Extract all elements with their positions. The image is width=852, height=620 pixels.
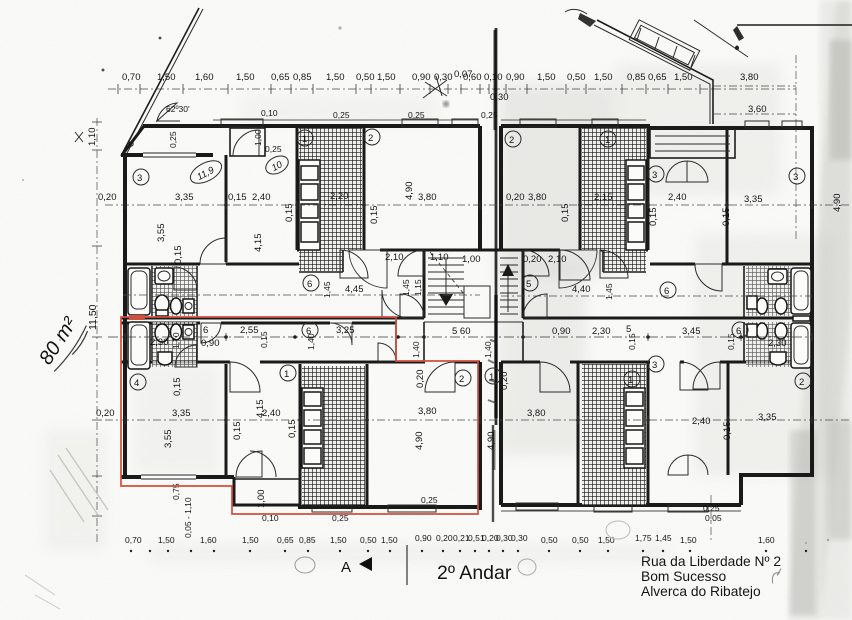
svg-text:0,25: 0,25 (265, 144, 282, 154)
svg-text:0,15: 0,15 (722, 422, 733, 441)
svg-text:0,20: 0,20 (436, 533, 453, 543)
svg-text:0,25: 0,25 (421, 495, 438, 505)
svg-text:0,20: 0,20 (523, 254, 542, 265)
svg-text:4,90: 4,90 (414, 432, 425, 451)
svg-text:3,35: 3,35 (175, 192, 194, 203)
svg-text:1,10: 1,10 (87, 128, 98, 147)
svg-text:1,45: 1,45 (401, 279, 411, 296)
svg-text:2,20: 2,20 (330, 191, 349, 202)
svg-text:1,50: 1,50 (377, 72, 396, 83)
svg-text:1,60: 1,60 (200, 535, 217, 545)
svg-text:2,10: 2,10 (548, 254, 567, 265)
svg-text:1,45: 1,45 (604, 283, 614, 300)
svg-text:0,90: 0,90 (506, 72, 525, 83)
svg-text:1: 1 (605, 135, 610, 146)
svg-text:0,50: 0,50 (541, 535, 558, 545)
svg-text:0,20: 0,20 (98, 192, 117, 203)
svg-text:0,60: 0,60 (463, 72, 482, 83)
svg-text:0,50: 0,50 (360, 535, 377, 545)
svg-text:1,50: 1,50 (594, 72, 613, 83)
svg-text:0,85: 0,85 (627, 72, 646, 83)
svg-text:2,30: 2,30 (592, 326, 611, 337)
svg-text:0,15: 0,15 (627, 333, 637, 350)
svg-text:4: 4 (134, 378, 139, 389)
svg-text:3,35: 3,35 (758, 412, 777, 423)
svg-text:3: 3 (793, 172, 798, 183)
svg-text:3,80: 3,80 (740, 72, 759, 83)
svg-text:0,85: 0,85 (299, 535, 316, 545)
svg-text:0,90: 0,90 (552, 326, 571, 337)
svg-text:1,50: 1,50 (326, 72, 345, 83)
svg-text:0,15: 0,15 (721, 208, 732, 227)
svg-text:1,00: 1,00 (462, 254, 481, 265)
svg-text:0,25: 0,25 (333, 110, 350, 120)
svg-text:Bom Sucesso: Bom Sucesso (641, 569, 726, 584)
svg-text:3,25: 3,25 (336, 325, 355, 336)
svg-text:1,10: 1,10 (430, 252, 449, 263)
svg-text:1,00: 1,00 (253, 129, 263, 146)
svg-text:3,80: 3,80 (418, 406, 437, 417)
svg-text:0,10: 0,10 (261, 108, 278, 118)
svg-text:1: 1 (628, 375, 633, 386)
svg-text:5: 5 (526, 279, 531, 290)
svg-text:2,40: 2,40 (668, 192, 687, 203)
svg-text:0,25: 0,25 (481, 110, 498, 120)
svg-text:3: 3 (652, 360, 657, 371)
svg-text:0,25: 0,25 (408, 110, 425, 120)
svg-text:0,15: 0,15 (726, 333, 736, 350)
svg-text:1,50: 1,50 (381, 535, 398, 545)
svg-text:4,90: 4,90 (832, 194, 843, 213)
svg-text:11,50: 11,50 (87, 304, 99, 330)
svg-text:3,35: 3,35 (744, 194, 763, 205)
svg-text:4,15: 4,15 (253, 234, 264, 253)
svg-text:1,50: 1,50 (330, 535, 347, 545)
svg-text:2,15: 2,15 (594, 192, 613, 203)
svg-text:5 60: 5 60 (452, 326, 471, 337)
svg-text:0,15: 0,15 (172, 378, 183, 397)
svg-text:3,80: 3,80 (418, 192, 437, 203)
svg-text:A: A (341, 559, 351, 576)
svg-text:4,45: 4,45 (345, 284, 364, 295)
svg-text:0,15: 0,15 (232, 422, 243, 441)
svg-text:3,80: 3,80 (528, 192, 547, 203)
svg-text:0,50: 0,50 (572, 535, 589, 545)
svg-text:2,30: 2,30 (150, 337, 169, 348)
svg-text:2,10: 2,10 (385, 252, 404, 263)
svg-text:6: 6 (203, 325, 208, 336)
svg-text:0,05 - 1,10: 0,05 - 1,10 (183, 497, 193, 538)
svg-text:0,70: 0,70 (125, 535, 142, 545)
svg-text:2: 2 (799, 377, 804, 388)
svg-text:0,05: 0,05 (705, 513, 722, 523)
svg-text:6: 6 (307, 279, 312, 290)
svg-text:6: 6 (664, 286, 669, 297)
svg-text:1,50: 1,50 (236, 72, 255, 83)
svg-text:0,85: 0,85 (293, 72, 312, 83)
svg-text:3,55: 3,55 (156, 224, 167, 243)
svg-text:5: 5 (626, 324, 631, 335)
svg-text:1,50: 1,50 (242, 535, 259, 545)
svg-text:0,20: 0,20 (506, 192, 525, 203)
svg-text:1,45: 1,45 (322, 281, 332, 298)
svg-text:1,40: 1,40 (306, 333, 316, 350)
svg-text:3,60: 3,60 (748, 104, 767, 115)
svg-text:1,50: 1,50 (680, 535, 697, 545)
svg-text:1,00: 1,00 (256, 490, 267, 509)
svg-text:0,50: 0,50 (567, 72, 586, 83)
svg-text:62º30': 62º30' (166, 104, 190, 114)
svg-text:2,30: 2,30 (768, 338, 787, 349)
svg-text:1,50: 1,50 (598, 535, 615, 545)
svg-text:Rua da Liberdade Nº 2: Rua da Liberdade Nº 2 (641, 554, 781, 569)
svg-text:0,15: 0,15 (173, 246, 184, 265)
svg-text:Alverca do Ribatejo: Alverca do Ribatejo (641, 584, 761, 599)
svg-text:3,55: 3,55 (163, 430, 174, 449)
svg-text:1,60: 1,60 (195, 72, 214, 83)
svg-text:1,60: 1,60 (758, 535, 775, 545)
svg-text:1,15: 1,15 (413, 279, 423, 296)
svg-text:1: 1 (284, 369, 289, 380)
svg-text:0,15: 0,15 (284, 204, 295, 223)
svg-text:0,15: 0,15 (369, 206, 380, 225)
svg-text:0,15: 0,15 (228, 192, 247, 203)
svg-text:2,40: 2,40 (692, 416, 711, 427)
svg-text:0,15: 0,15 (287, 420, 298, 439)
svg-text:0,65: 0,65 (271, 72, 290, 83)
svg-text:1,40: 1,40 (483, 341, 493, 358)
svg-text:2,55: 2,55 (240, 325, 259, 336)
svg-text:4,90: 4,90 (404, 182, 415, 201)
svg-text:2,40: 2,40 (252, 192, 271, 203)
svg-text:0,25: 0,25 (168, 131, 178, 148)
svg-text:3: 3 (652, 170, 657, 181)
svg-text:2º Andar: 2º Andar (437, 562, 512, 584)
svg-text:2: 2 (509, 135, 514, 146)
svg-text:4,40: 4,40 (572, 284, 591, 295)
svg-text:1,40: 1,40 (411, 341, 421, 358)
svg-text:3: 3 (137, 173, 142, 184)
svg-text:1,75: 1,75 (635, 533, 652, 543)
svg-text:1: 1 (302, 134, 307, 145)
svg-text:0,90: 0,90 (412, 72, 431, 83)
svg-text:4,15: 4,15 (255, 400, 266, 419)
svg-text:0,50: 0,50 (356, 72, 375, 83)
svg-text:0,15: 0,15 (259, 331, 269, 348)
svg-text:1: 1 (489, 372, 494, 383)
svg-text:0,15: 0,15 (648, 208, 659, 227)
svg-text:3,45: 3,45 (682, 326, 701, 337)
svg-text:0,65: 0,65 (277, 535, 294, 545)
svg-text:0,90: 0,90 (201, 338, 220, 349)
svg-text:0,30: 0,30 (511, 533, 528, 543)
svg-text:2: 2 (368, 133, 373, 144)
svg-text:0,25: 0,25 (703, 503, 720, 513)
svg-text:0,20: 0,20 (499, 372, 510, 391)
svg-text:1,50: 1,50 (158, 535, 175, 545)
svg-text:0,20: 0,20 (96, 408, 115, 419)
svg-text:0,65: 0,65 (648, 72, 667, 83)
svg-text:0,90: 0,90 (415, 533, 432, 543)
svg-text:1,50: 1,50 (537, 72, 556, 83)
svg-text:1,70: 1,70 (171, 332, 181, 349)
svg-text:0,20: 0,20 (415, 370, 426, 389)
svg-text:0,70: 0,70 (122, 72, 141, 83)
svg-text:3,80: 3,80 (527, 408, 546, 419)
svg-text:1,45: 1,45 (655, 533, 672, 543)
svg-text:3,35: 3,35 (172, 408, 191, 419)
svg-text:2: 2 (459, 374, 464, 385)
svg-text:0,15: 0,15 (560, 204, 571, 223)
svg-text:4,90: 4,90 (486, 432, 497, 451)
